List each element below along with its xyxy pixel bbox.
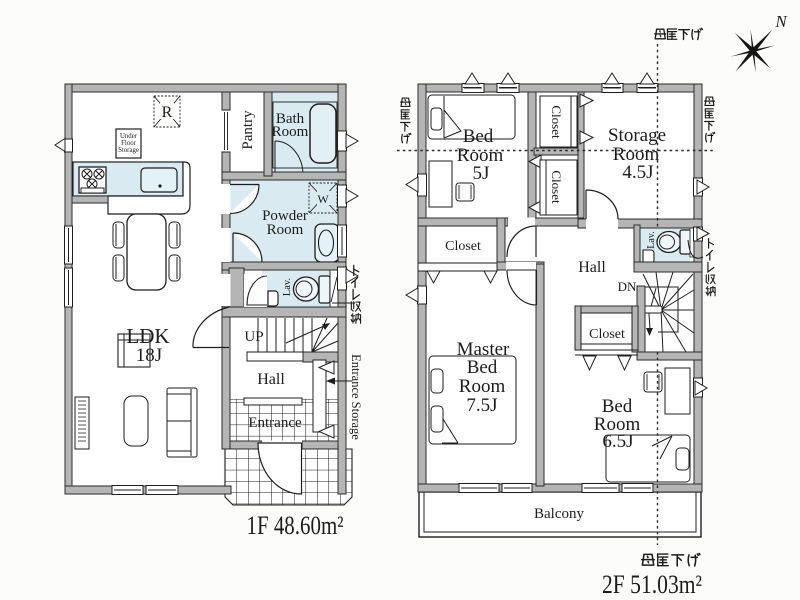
- svg-text:Under: Under: [120, 133, 138, 140]
- svg-text:5J: 5J: [473, 163, 490, 184]
- svg-text:N: N: [774, 12, 788, 31]
- svg-text:1F 48.60m²: 1F 48.60m²: [247, 511, 344, 540]
- svg-text:UP: UP: [244, 329, 263, 345]
- svg-text:W: W: [317, 192, 329, 206]
- svg-text:Storage: Storage: [118, 147, 139, 154]
- svg-text:DN: DN: [618, 279, 637, 294]
- svg-text:R: R: [162, 104, 173, 121]
- svg-text:Lav.: Lav.: [282, 278, 293, 296]
- svg-text:Closet: Closet: [589, 327, 625, 342]
- svg-text:Room: Room: [267, 222, 304, 238]
- svg-text:2F 51.03m²: 2F 51.03m²: [602, 570, 702, 599]
- svg-text:18J: 18J: [136, 345, 162, 366]
- svg-text:Hall: Hall: [578, 259, 606, 276]
- svg-text:Balcony: Balcony: [534, 506, 584, 522]
- svg-text:Bed: Bed: [463, 126, 494, 147]
- svg-text:Lav.: Lav.: [646, 231, 657, 248]
- svg-text:Room: Room: [459, 376, 506, 397]
- svg-text:Entrance Storage: Entrance Storage: [349, 354, 363, 440]
- svg-text:Pantry: Pantry: [240, 110, 256, 150]
- svg-text:6.5J: 6.5J: [602, 431, 633, 452]
- svg-text:Hall: Hall: [257, 371, 285, 388]
- svg-text:Closet: Closet: [549, 105, 564, 139]
- svg-text:Closet: Closet: [549, 170, 564, 204]
- svg-text:4.5J: 4.5J: [622, 162, 653, 183]
- svg-text:Closet: Closet: [445, 239, 481, 254]
- svg-text:Entrance: Entrance: [248, 415, 302, 431]
- svg-text:Room: Room: [272, 124, 309, 140]
- svg-text:Floor: Floor: [121, 140, 136, 147]
- svg-text:Bed: Bed: [467, 357, 498, 378]
- svg-text:7.5J: 7.5J: [466, 395, 497, 416]
